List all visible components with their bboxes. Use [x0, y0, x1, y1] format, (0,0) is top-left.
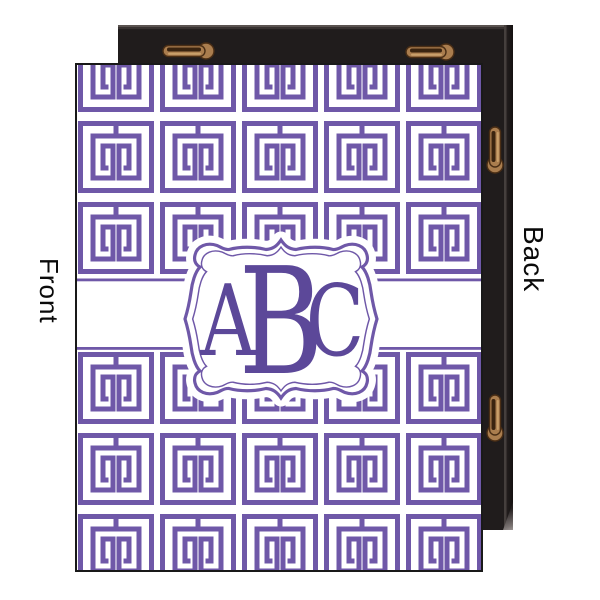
frame-top-edge: [118, 25, 513, 30]
greek-key-pattern: A B C: [77, 65, 481, 570]
keyhole-hanger-icon: [484, 124, 506, 176]
keyhole-hanger-icon: [403, 41, 455, 63]
keyhole-hanger-icon: [160, 40, 216, 62]
monogram-letter-right: C: [306, 264, 364, 379]
product-mockup: A B C Front Back: [0, 0, 600, 600]
canvas-front: A B C: [75, 63, 483, 572]
frame-right-face: [504, 25, 513, 530]
keyhole-hanger-icon: [484, 392, 506, 444]
front-label: Front: [33, 258, 64, 324]
back-label: Back: [517, 226, 549, 292]
monogram-badge: A B C: [185, 237, 377, 409]
